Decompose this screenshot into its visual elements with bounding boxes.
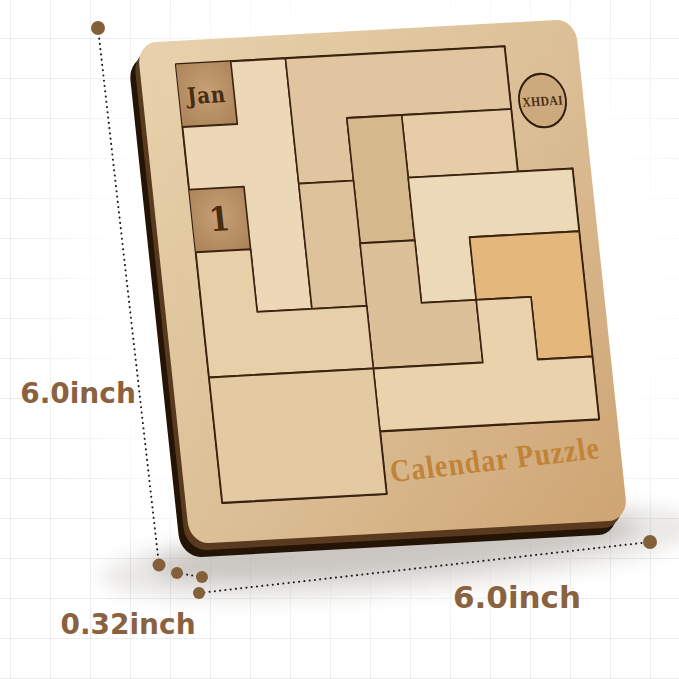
puzzle-piece[interactable] bbox=[209, 369, 386, 503]
thickness-dimension-label: 0.32inch bbox=[60, 608, 195, 641]
dimension-dot bbox=[153, 559, 166, 572]
dimension-dot bbox=[193, 587, 205, 599]
dimension-dot bbox=[91, 21, 105, 35]
puzzle-board: Jan 1 XHDAI Calendar Puzzle bbox=[137, 19, 628, 544]
product-screenshot: Jan 1 XHDAI Calendar Puzzle bbox=[0, 0, 679, 679]
day-engraving: 1 bbox=[207, 198, 231, 238]
dimension-dot bbox=[171, 567, 183, 579]
width-dimension-label: 6.0inch bbox=[453, 579, 581, 615]
puzzle-piece[interactable] bbox=[402, 109, 518, 178]
month-engraving: Jan bbox=[184, 81, 227, 110]
dimension-dot bbox=[196, 571, 208, 583]
brand-text: XHDAI bbox=[521, 93, 563, 110]
scene: Jan 1 XHDAI Calendar Puzzle bbox=[0, 0, 679, 679]
dimension-dot bbox=[643, 535, 657, 549]
height-dimension-label: 6.0inch bbox=[20, 377, 136, 410]
